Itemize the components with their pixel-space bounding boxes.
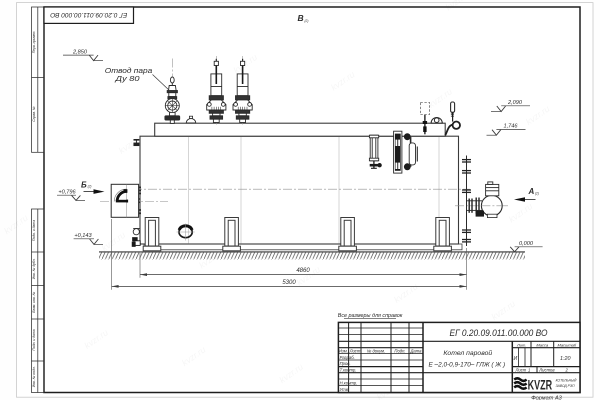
svg-text:В: В: [298, 13, 304, 23]
svg-text:Подп. и дата: Подп. и дата: [32, 329, 36, 350]
svg-text:2,090: 2,090: [507, 100, 523, 106]
svg-text:1: 1: [528, 367, 530, 372]
svg-text:Отвод пара: Отвод пара: [105, 67, 153, 75]
svg-text:ЕГ 0.20.09.011.00.000 ВО: ЕГ 0.20.09.011.00.000 ВО: [450, 328, 548, 338]
svg-text:Разраб.: Разраб.: [340, 355, 355, 360]
svg-text:Все размеры для справок: Все размеры для справок: [338, 313, 403, 319]
svg-text:Т.контр.: Т.контр.: [340, 368, 357, 373]
svg-text:Подп. и дата: Подп. и дата: [32, 220, 36, 241]
svg-text:А: А: [528, 187, 535, 196]
svg-text:(2): (2): [535, 192, 539, 196]
svg-text:Пров.: Пров.: [340, 361, 351, 366]
svg-text:Инв. № дубл.: Инв. № дубл.: [32, 258, 36, 279]
svg-text:Дата: Дата: [409, 349, 422, 354]
svg-text:Изм.: Изм.: [339, 349, 348, 354]
svg-text:Е –2,0-0,9-170– ГЛЖ ( Ж ): Е –2,0-0,9-170– ГЛЖ ( Ж ): [429, 362, 506, 369]
svg-text:Инв. № подл.: Инв. № подл.: [32, 366, 36, 387]
svg-text:Взам. инв. №: Взам. инв. №: [32, 291, 36, 312]
svg-text:Масштаб: Масштаб: [557, 342, 576, 347]
svg-text:Лит.: Лит.: [516, 342, 526, 347]
svg-text:0,000: 0,000: [519, 241, 534, 247]
svg-text:1:20: 1:20: [560, 356, 571, 362]
svg-text:5300: 5300: [282, 280, 296, 286]
svg-text:1,746: 1,746: [504, 124, 519, 130]
svg-text:(2): (2): [88, 184, 92, 188]
svg-text:Справ. №: Справ. №: [32, 106, 36, 122]
svg-text:4860: 4860: [296, 268, 310, 274]
svg-text:Б: Б: [81, 180, 87, 189]
svg-text:Формат А3: Формат А3: [531, 395, 562, 400]
svg-text:+0,796: +0,796: [58, 189, 76, 195]
svg-text:ЗАВОД РЭП: ЗАВОД РЭП: [556, 384, 576, 388]
svg-text:Н.контр.: Н.контр.: [340, 380, 358, 385]
svg-text:№ докум.: № докум.: [367, 349, 385, 354]
svg-text:KVZR: KVZR: [528, 377, 553, 393]
svg-text:Лист: Лист: [349, 349, 361, 354]
svg-text:Ду 80: Ду 80: [114, 76, 139, 83]
svg-text:И: И: [514, 356, 518, 362]
svg-text:+0,143: +0,143: [74, 233, 92, 239]
svg-text:Подп.: Подп.: [394, 349, 405, 354]
svg-text:Листов: Листов: [538, 367, 555, 372]
svg-text:ЕГ 0.20.09.011.00.000 ВО: ЕГ 0.20.09.011.00.000 ВО: [50, 11, 127, 18]
svg-text:(2): (2): [305, 19, 309, 23]
svg-text:2,850: 2,850: [72, 50, 88, 56]
svg-text:КОТЕЛЬНЫЙ: КОТЕЛЬНЫЙ: [556, 379, 577, 383]
svg-text:Масса: Масса: [536, 342, 549, 347]
svg-text:Котел паровой: Котел паровой: [443, 349, 492, 357]
svg-text:Утв.: Утв.: [340, 387, 350, 392]
svg-text:Перв. примен.: Перв. примен.: [32, 31, 36, 54]
svg-text:Лист: Лист: [515, 367, 527, 372]
